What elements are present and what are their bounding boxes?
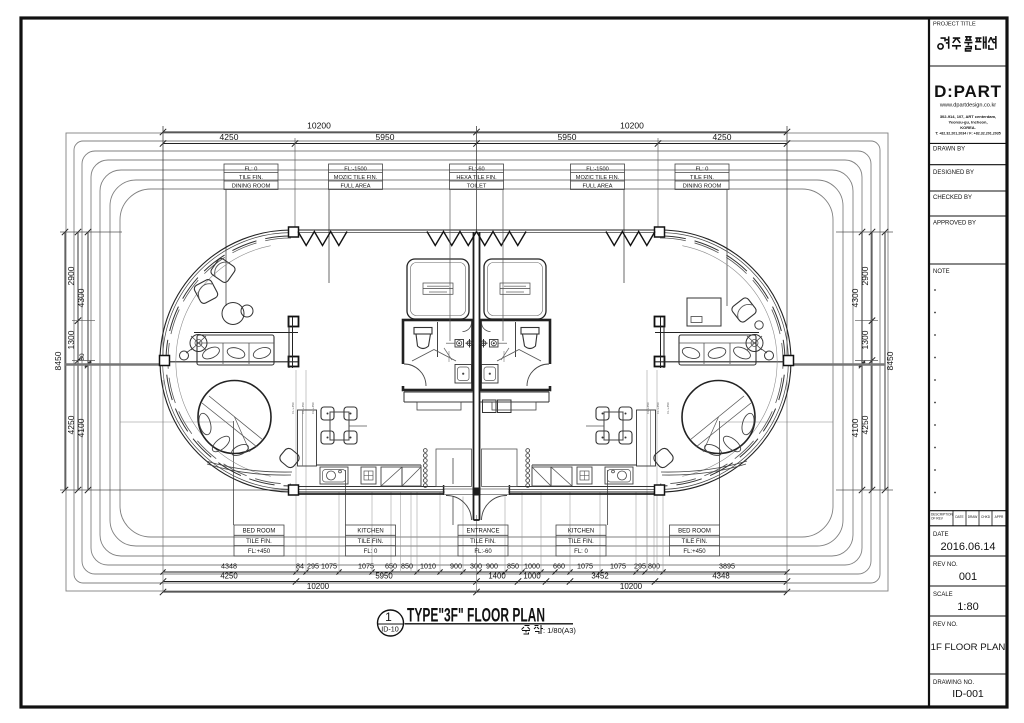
svg-text:TILE FIN.: TILE FIN. bbox=[690, 175, 714, 181]
svg-text:DINING ROOM: DINING ROOM bbox=[232, 184, 271, 190]
svg-text:84: 84 bbox=[296, 562, 304, 571]
svg-text:1075: 1075 bbox=[577, 562, 593, 571]
svg-text:FL:-1500: FL:-1500 bbox=[344, 167, 366, 173]
svg-text:8450: 8450 bbox=[53, 351, 63, 370]
svg-text:HEXA TILE FIN.: HEXA TILE FIN. bbox=[456, 175, 497, 181]
svg-text:302-914, 107, ART centerdam,: 302-914, 107, ART centerdam, bbox=[940, 114, 996, 119]
svg-text:FL:+450: FL:+450 bbox=[666, 402, 670, 414]
svg-text:REV NO.: REV NO. bbox=[933, 622, 958, 628]
svg-text:FL:-1500: FL:-1500 bbox=[586, 167, 608, 173]
svg-text:4250: 4250 bbox=[66, 415, 76, 434]
svg-text:10200: 10200 bbox=[620, 121, 644, 131]
svg-text:001: 001 bbox=[959, 571, 977, 583]
svg-text:1300: 1300 bbox=[66, 330, 76, 349]
svg-text:DRAWING NO.: DRAWING NO. bbox=[933, 680, 974, 686]
svg-text:5950: 5950 bbox=[558, 132, 577, 142]
svg-text:T: +82.32.201.2034 / F: +82.32: T: +82.32.201.2034 / F: +82.32.201.2035 bbox=[935, 132, 1001, 136]
svg-text:BED ROOM: BED ROOM bbox=[678, 529, 711, 535]
svg-text:BED ROOM: BED ROOM bbox=[243, 529, 276, 535]
svg-text:TOILET: TOILET bbox=[467, 184, 487, 190]
svg-text:ENTRANCE: ENTRANCE bbox=[466, 529, 499, 535]
svg-text:3895: 3895 bbox=[719, 562, 735, 571]
svg-text:50: 50 bbox=[79, 353, 86, 361]
svg-text:KITCHEN: KITCHEN bbox=[357, 529, 383, 535]
svg-text:1075: 1075 bbox=[321, 562, 337, 571]
svg-text:OF REV: OF REV bbox=[931, 517, 944, 521]
svg-text:FL:-60: FL:-60 bbox=[474, 549, 492, 555]
svg-text:4250: 4250 bbox=[220, 132, 239, 142]
svg-text:1000: 1000 bbox=[524, 562, 540, 571]
svg-text:4250: 4250 bbox=[713, 132, 732, 142]
svg-text:KOREA.: KOREA. bbox=[960, 125, 976, 130]
svg-text:295: 295 bbox=[307, 562, 319, 571]
svg-text:TILE FIN.: TILE FIN. bbox=[470, 539, 496, 545]
svg-text:4300: 4300 bbox=[850, 288, 860, 307]
svg-text:FL:+450: FL:+450 bbox=[248, 549, 271, 555]
svg-text:1:80: 1:80 bbox=[957, 601, 978, 613]
svg-text:5950: 5950 bbox=[376, 132, 395, 142]
svg-text:1075: 1075 bbox=[358, 562, 374, 571]
svg-text:TILE FIN.: TILE FIN. bbox=[568, 539, 594, 545]
svg-text:1F FLOOR PLAN: 1F FLOOR PLAN bbox=[931, 642, 1006, 653]
svg-text:REV NO.: REV NO. bbox=[933, 562, 958, 568]
svg-text:DESIGNED BY: DESIGNED BY bbox=[933, 170, 974, 176]
svg-text:DATE: DATE bbox=[933, 532, 949, 538]
svg-text:1: 1 bbox=[385, 610, 392, 624]
svg-text:FL:+450: FL:+450 bbox=[656, 402, 660, 414]
svg-text:FULL AREA: FULL AREA bbox=[583, 184, 613, 190]
svg-text:SCALE: SCALE bbox=[933, 592, 953, 598]
svg-text:FL:+450: FL:+450 bbox=[311, 402, 315, 414]
svg-text:10200: 10200 bbox=[307, 121, 331, 131]
svg-text:FL:+450: FL:+450 bbox=[291, 402, 295, 414]
svg-text:NOTE: NOTE bbox=[933, 269, 950, 275]
svg-text:KITCHEN: KITCHEN bbox=[568, 529, 594, 535]
svg-text:TILE FIN.: TILE FIN. bbox=[682, 539, 708, 545]
svg-text:ID-10: ID-10 bbox=[381, 625, 399, 634]
svg-text:CHKD: CHKD bbox=[981, 515, 991, 519]
svg-text:: 1/80(A3): : 1/80(A3) bbox=[543, 626, 576, 635]
svg-text:FL:-60: FL:-60 bbox=[468, 167, 484, 173]
svg-text:4348: 4348 bbox=[221, 562, 237, 571]
svg-text:FL:+450: FL:+450 bbox=[646, 402, 650, 414]
svg-text:4250: 4250 bbox=[220, 572, 238, 581]
svg-text:660: 660 bbox=[553, 562, 565, 571]
svg-text:FL: 0: FL: 0 bbox=[696, 167, 709, 173]
svg-text:2900: 2900 bbox=[860, 266, 870, 285]
svg-text:4100: 4100 bbox=[76, 418, 86, 437]
svg-text:APPROVED BY: APPROVED BY bbox=[933, 221, 976, 227]
svg-text:MOZIC TILE FIN.: MOZIC TILE FIN. bbox=[576, 175, 620, 181]
svg-text:10200: 10200 bbox=[307, 582, 330, 591]
svg-text:4300: 4300 bbox=[76, 288, 86, 307]
svg-text:4100: 4100 bbox=[850, 418, 860, 437]
svg-text:8450: 8450 bbox=[885, 351, 895, 370]
svg-text:Yeonsu-gu, Incheon,: Yeonsu-gu, Incheon, bbox=[948, 120, 987, 125]
svg-text:PROJECT TITLE: PROJECT TITLE bbox=[933, 22, 976, 28]
svg-text:FL:+450: FL:+450 bbox=[683, 549, 706, 555]
svg-text:FL: 0: FL: 0 bbox=[364, 549, 378, 555]
svg-text:TILE FIN.: TILE FIN. bbox=[358, 539, 384, 545]
svg-text:MOZIC TILE FIN.: MOZIC TILE FIN. bbox=[334, 175, 378, 181]
svg-text:TILE FIN.: TILE FIN. bbox=[246, 539, 272, 545]
svg-text:DRAWN BY: DRAWN BY bbox=[933, 147, 965, 153]
svg-text:900: 900 bbox=[486, 562, 498, 571]
svg-text:DINING ROOM: DINING ROOM bbox=[683, 184, 722, 190]
svg-text:1075: 1075 bbox=[610, 562, 626, 571]
svg-text:D:PART: D:PART bbox=[934, 82, 1002, 101]
svg-text:1000: 1000 bbox=[523, 572, 541, 581]
svg-text:DRAW: DRAW bbox=[968, 515, 978, 519]
svg-text:FULL AREA: FULL AREA bbox=[341, 184, 371, 190]
svg-text:1300: 1300 bbox=[860, 330, 870, 349]
svg-text:FL: 0: FL: 0 bbox=[574, 549, 588, 555]
svg-text:CHECKED BY: CHECKED BY bbox=[933, 195, 972, 201]
svg-text:2900: 2900 bbox=[66, 266, 76, 285]
svg-text:300: 300 bbox=[470, 562, 482, 571]
svg-text:DATE: DATE bbox=[955, 515, 963, 519]
svg-text:1010: 1010 bbox=[420, 562, 436, 571]
svg-text:900: 900 bbox=[450, 562, 462, 571]
svg-text:ID-001: ID-001 bbox=[952, 688, 984, 700]
svg-text:www.dpartdesign.co.kr: www.dpartdesign.co.kr bbox=[939, 103, 996, 109]
svg-text:4348: 4348 bbox=[712, 572, 729, 581]
svg-text:FL: 0: FL: 0 bbox=[245, 167, 258, 173]
svg-text:10200: 10200 bbox=[620, 582, 643, 591]
svg-text:APPR: APPR bbox=[995, 515, 1004, 519]
svg-text:2016.06.14: 2016.06.14 bbox=[940, 541, 995, 553]
svg-text:TILE FIN.: TILE FIN. bbox=[239, 175, 263, 181]
svg-text:FL:+450: FL:+450 bbox=[301, 402, 305, 414]
svg-text:850: 850 bbox=[507, 562, 519, 571]
svg-text:4250: 4250 bbox=[860, 415, 870, 434]
